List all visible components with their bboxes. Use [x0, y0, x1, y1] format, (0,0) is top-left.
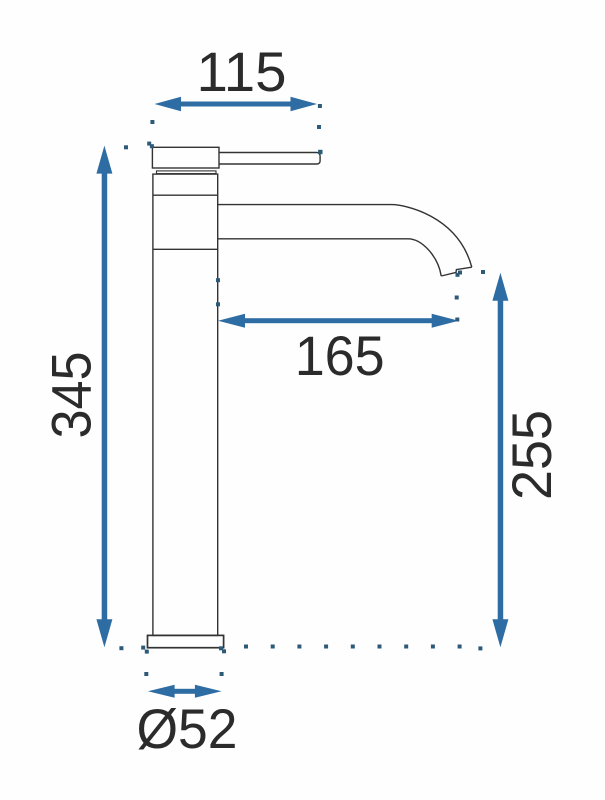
svg-text:115: 115 — [197, 40, 287, 103]
svg-text:165: 165 — [295, 324, 385, 387]
svg-text:255: 255 — [500, 410, 563, 500]
svg-text:Ø52: Ø52 — [137, 697, 238, 760]
svg-text:345: 345 — [40, 352, 103, 439]
